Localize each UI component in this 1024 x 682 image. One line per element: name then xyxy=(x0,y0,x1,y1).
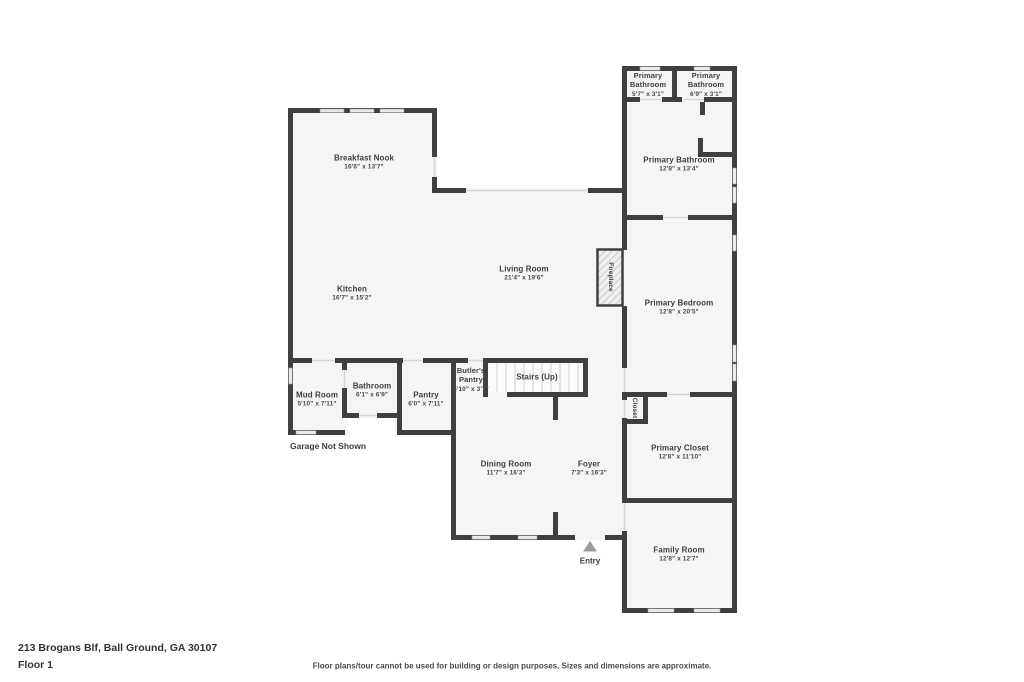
property-address: 213 Brogans Blf, Ball Ground, GA 30107 xyxy=(18,642,217,654)
floor-areas xyxy=(288,66,737,613)
garage-note: Garage Not Shown xyxy=(290,441,366,451)
floor-plan-page: Breakfast Nook 16'6" x 13'7" Kitchen 16'… xyxy=(0,0,1024,682)
entry-arrow-icon xyxy=(583,541,597,552)
disclaimer-text: Floor plans/tour cannot be used for buil… xyxy=(313,662,712,671)
fireplace-hatch xyxy=(598,250,623,306)
entry-label: Entry xyxy=(580,557,600,566)
floor-label: Floor 1 xyxy=(18,659,53,671)
floor-plan-drawing xyxy=(0,0,1024,682)
